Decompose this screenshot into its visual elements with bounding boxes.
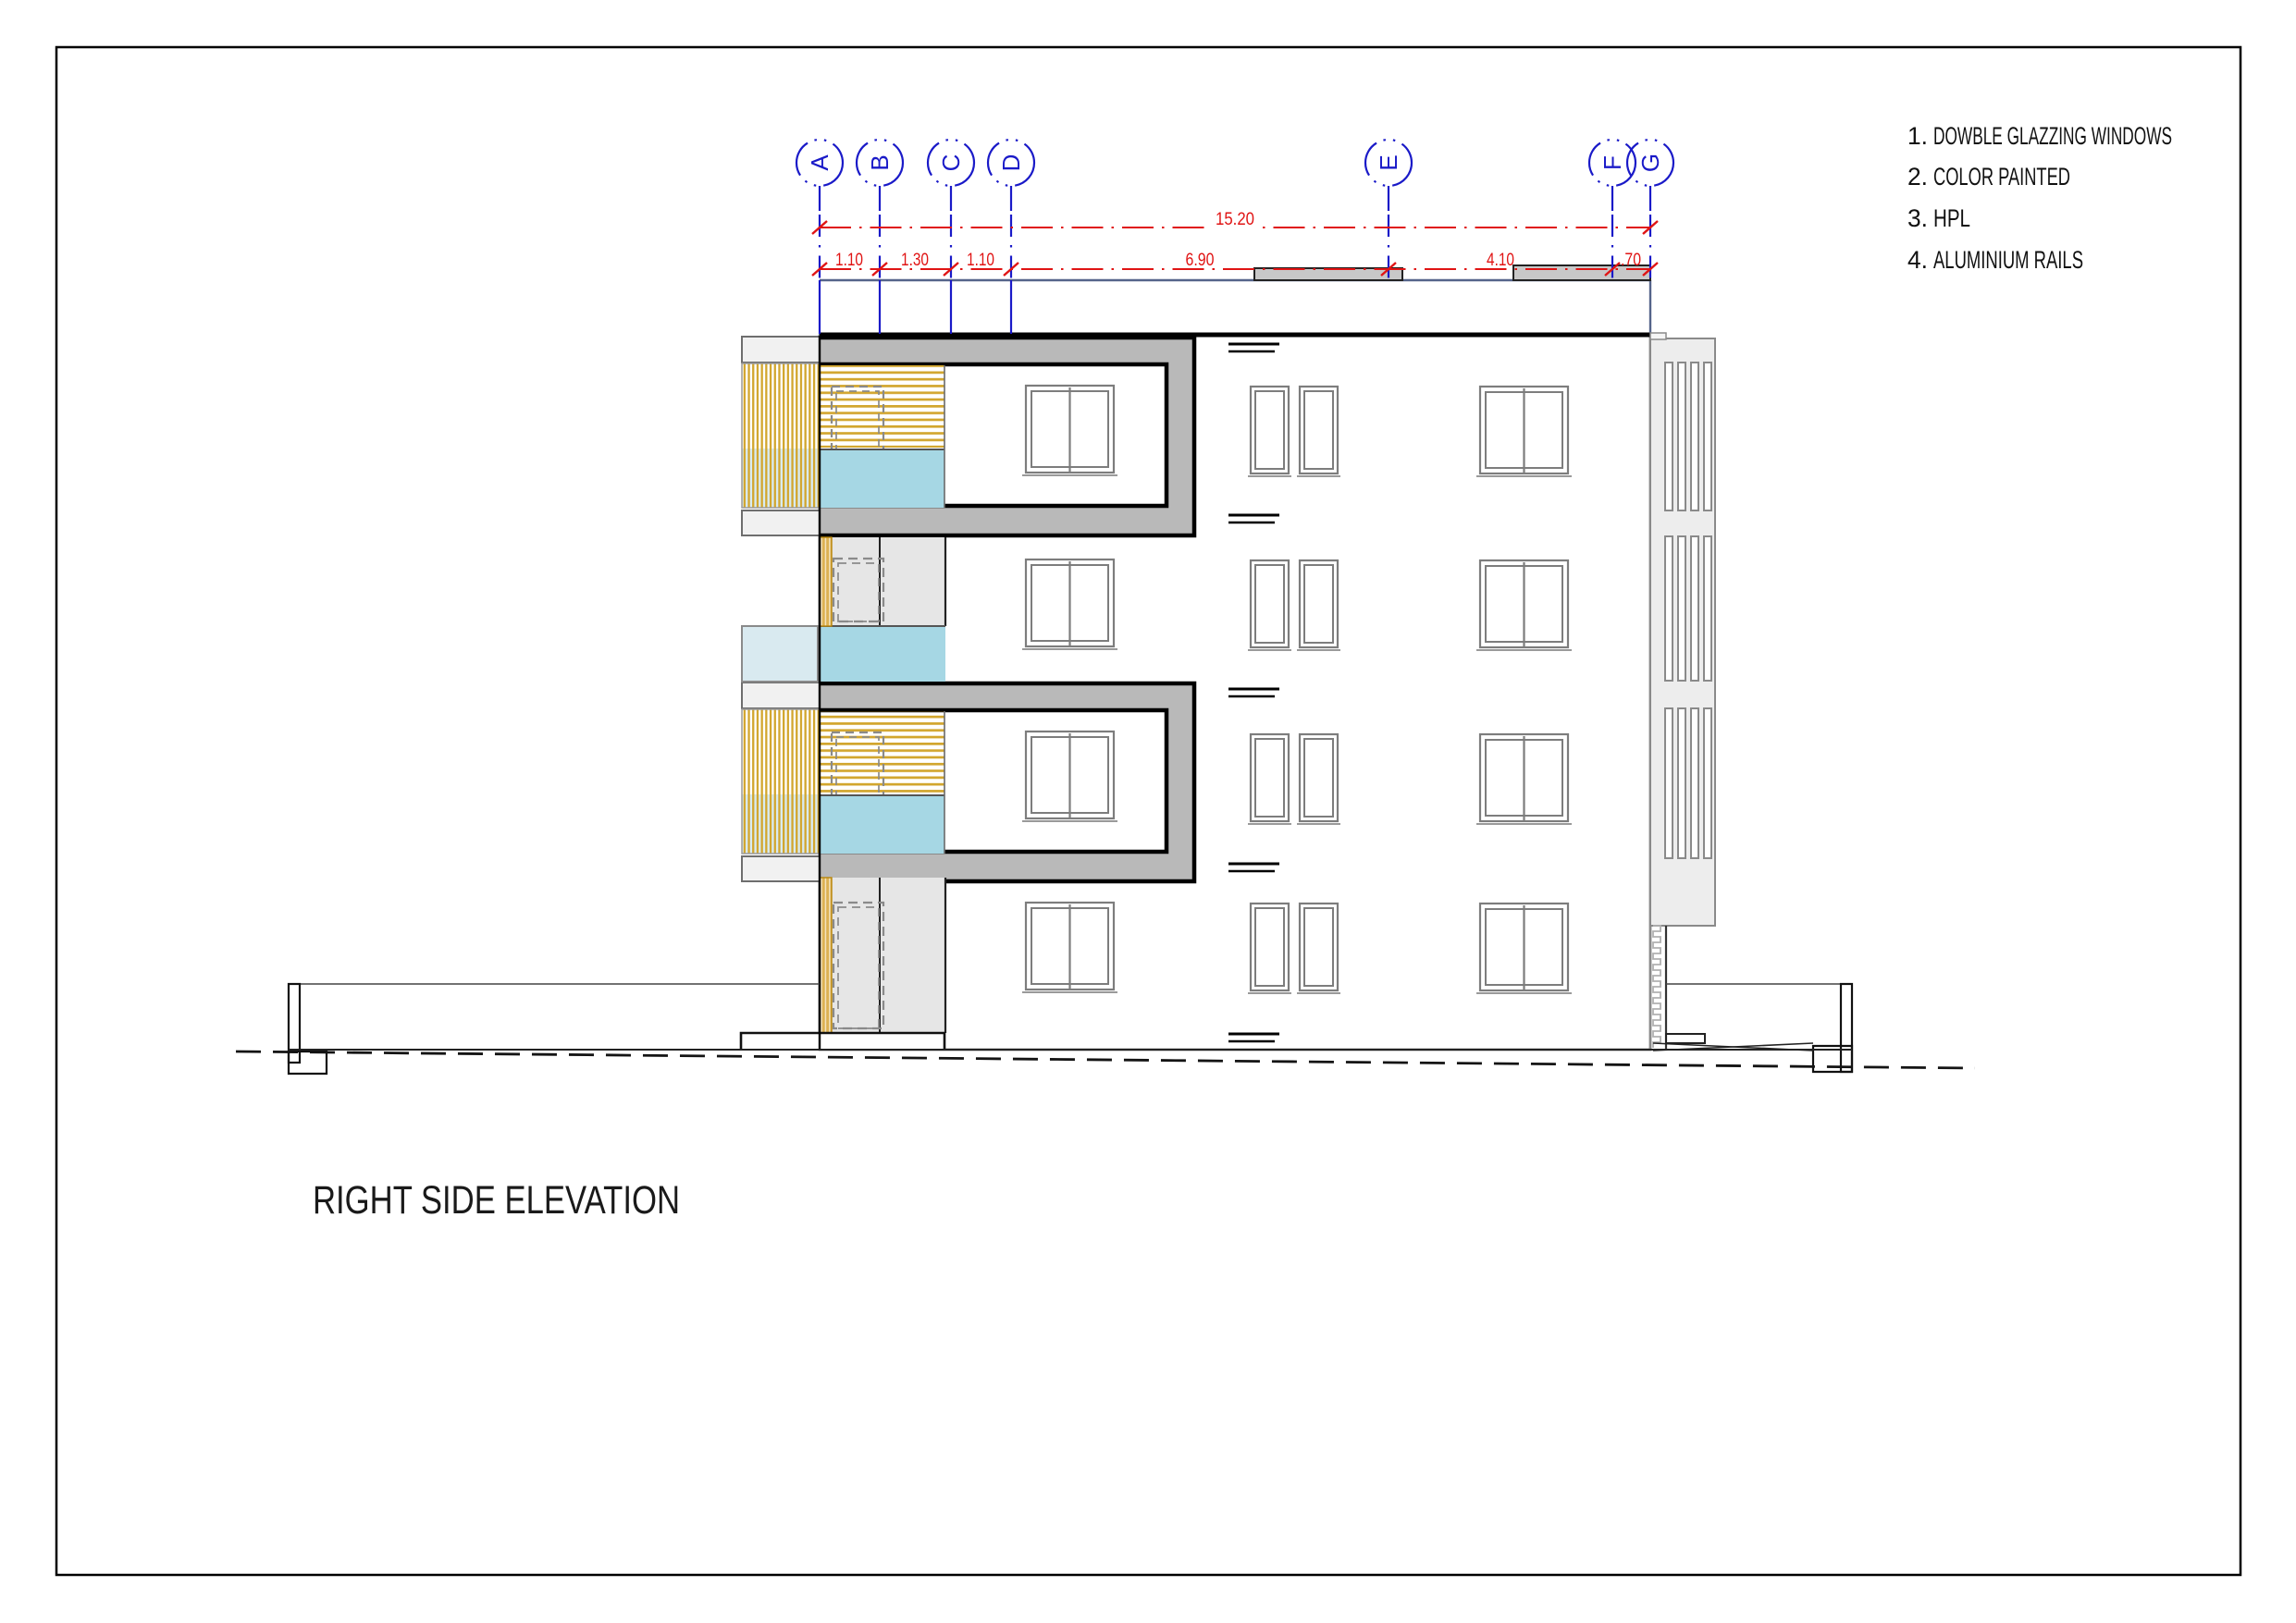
svg-text:6.90: 6.90	[1186, 251, 1215, 270]
svg-text:G: G	[1636, 154, 1664, 172]
svg-text:15.20: 15.20	[1216, 210, 1254, 229]
svg-text:4.: 4.	[1907, 246, 1928, 274]
svg-text:1.10: 1.10	[967, 251, 994, 270]
svg-text:.70: .70	[1621, 251, 1641, 270]
svg-text:HPL: HPL	[1933, 204, 1970, 232]
svg-text:C: C	[937, 154, 965, 172]
svg-text:E: E	[1375, 154, 1402, 170]
svg-text:COLOR PAINTED: COLOR PAINTED	[1933, 163, 2070, 191]
svg-text:1.: 1.	[1907, 122, 1928, 150]
svg-text:2.: 2.	[1907, 163, 1928, 191]
svg-text:4.10: 4.10	[1487, 251, 1514, 270]
svg-text:DOWBLE GLAZZING WINDOWS: DOWBLE GLAZZING WINDOWS	[1933, 122, 2172, 150]
svg-text:A: A	[806, 154, 833, 171]
svg-text:B: B	[866, 154, 894, 170]
svg-text:ALUMINIUM RAILS: ALUMINIUM RAILS	[1933, 246, 2083, 274]
svg-text:1.10: 1.10	[835, 251, 863, 270]
svg-text:F: F	[1599, 155, 1626, 170]
svg-text:3.: 3.	[1907, 204, 1928, 232]
svg-text:RIGHT SIDE ELEVATION: RIGHT SIDE ELEVATION	[313, 1178, 680, 1223]
svg-text:1.30: 1.30	[901, 251, 929, 270]
svg-text:D: D	[997, 154, 1025, 172]
